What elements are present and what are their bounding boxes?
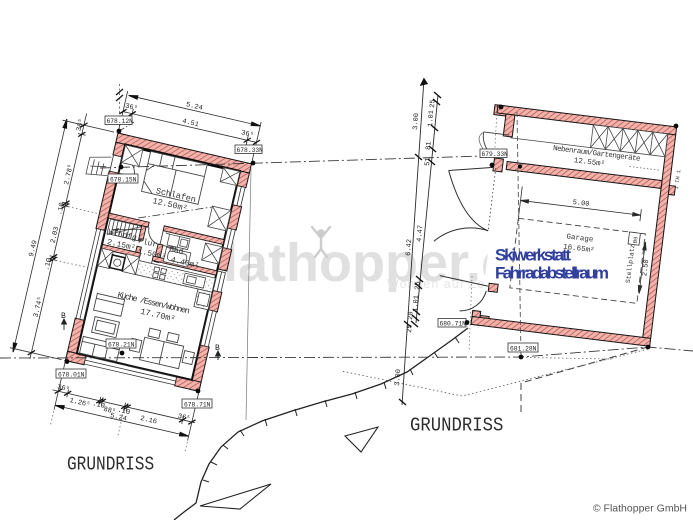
svg-text:51: 51 <box>424 157 433 166</box>
svg-text:25: 25 <box>406 324 415 333</box>
svg-text:25: 25 <box>414 281 423 290</box>
svg-text:Skiwerkstatt: Skiwerkstatt <box>495 246 571 265</box>
svg-text:1.01: 1.01 <box>427 110 436 127</box>
svg-text:25: 25 <box>429 99 438 108</box>
svg-text:B9: B9 <box>632 236 640 243</box>
svg-text:GRUNDRISS: GRUNDRISS <box>67 454 154 476</box>
svg-text:1.01: 1.01 <box>412 295 421 312</box>
svg-text:4.47: 4.47 <box>416 225 425 242</box>
svg-text:681.28N: 681.28N <box>510 345 537 352</box>
svg-text:678.12N: 678.12N <box>107 118 134 125</box>
svg-text:© Flathopper GmbH: © Flathopper GmbH <box>593 503 687 515</box>
svg-text:679.33N: 679.33N <box>482 151 509 158</box>
svg-text:678.15N: 678.15N <box>110 176 137 183</box>
svg-text:678.21N: 678.21N <box>108 341 135 348</box>
svg-text:3.00: 3.00 <box>394 369 403 386</box>
svg-text:678.33N: 678.33N <box>237 147 264 154</box>
svg-text:81: 81 <box>425 141 434 150</box>
svg-text:678.01N: 678.01N <box>58 371 85 378</box>
svg-text:678.71N: 678.71N <box>184 401 211 408</box>
svg-text:6.42: 6.42 <box>405 239 414 256</box>
svg-text:3.00: 3.00 <box>412 113 421 130</box>
svg-text:Fahrradabstellraum: Fahrradabstellraum <box>495 264 609 283</box>
svg-text:GRUNDRISS: GRUNDRISS <box>410 416 503 437</box>
svg-text:20: 20 <box>407 311 416 320</box>
svg-text:680.71N: 680.71N <box>440 321 467 328</box>
